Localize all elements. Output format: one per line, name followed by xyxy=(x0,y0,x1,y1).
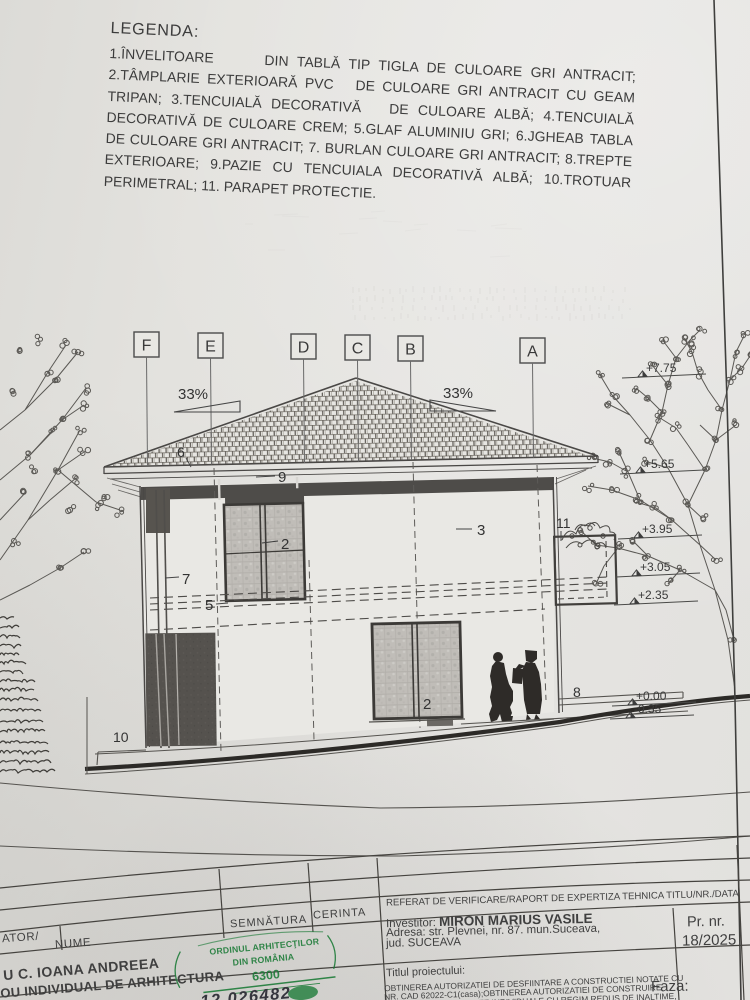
svg-text:12 026482: 12 026482 xyxy=(200,984,293,1000)
svg-text:6300: 6300 xyxy=(251,967,280,984)
